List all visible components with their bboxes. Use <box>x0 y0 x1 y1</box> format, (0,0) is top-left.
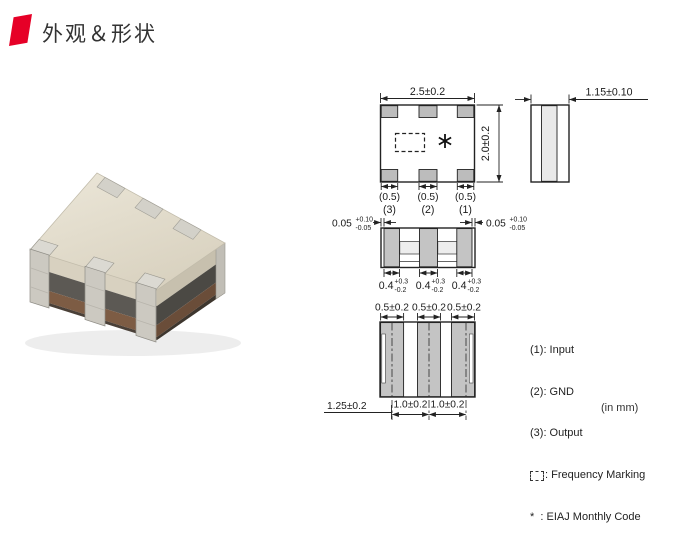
terminal-width-labels: 0.4 +0.3 -0.2 0.4 +0.3 -0.2 0.4 +0.3 -0.… <box>379 279 482 295</box>
edge-gap-dim-right <box>460 218 483 227</box>
svg-text:0.4: 0.4 <box>379 280 394 292</box>
svg-text:0.4: 0.4 <box>416 280 431 292</box>
front-view-terminals <box>384 229 472 267</box>
edge-gap-plus-left: +0.10 <box>356 217 374 224</box>
pin-number-2: (2) <box>422 204 435 216</box>
component-photo <box>15 140 255 370</box>
pad-width-label-1: (0.5) <box>455 192 476 203</box>
bottom-view-lands <box>381 323 475 397</box>
svg-text:+0.3: +0.3 <box>468 279 482 286</box>
edge-gap-dim-left <box>373 218 396 227</box>
bottom-view-drawing: 0.5±0.2 0.5±0.2 0.5±0.2 1.0±0.2 1.0±0.2 … <box>324 303 481 421</box>
side-notch-right <box>469 334 473 383</box>
edge-gap-value-right: 0.05 <box>486 219 506 230</box>
terminal-right-corner <box>216 243 225 299</box>
front-view-drawing: 0.05 +0.10 -0.05 0.05 +0.10 -0.05 0.4 +0… <box>332 217 527 295</box>
pad-width-dims <box>381 183 474 190</box>
side-view-drawing: 1.15±0.10 <box>515 87 648 183</box>
pad-width-label-2: (0.5) <box>418 192 439 203</box>
pitch-label-1: 1.0±0.2 <box>394 400 428 411</box>
pad-width-label-3: (0.5) <box>379 192 400 203</box>
pitch-label-2: 1.0±0.2 <box>431 400 465 411</box>
page-title: 外观＆形状 <box>42 18 157 48</box>
dim-1-15: 1.15±0.10 <box>585 87 632 99</box>
land-width-dims <box>381 313 475 321</box>
pin-number-1: (1) <box>459 204 472 216</box>
legend: (1): Input (2): GND (3): Output : Freque… <box>530 316 645 539</box>
offset-label: 1.25±0.2 <box>327 401 367 412</box>
land-width-label-3: 0.5±0.2 <box>447 303 481 314</box>
svg-text:-0.2: -0.2 <box>395 287 407 294</box>
land-width-label-2: 0.5±0.2 <box>412 303 446 314</box>
svg-text:0.4: 0.4 <box>452 280 467 292</box>
legend-item-input: (1): Input <box>530 344 645 358</box>
svg-text:-0.2: -0.2 <box>432 287 444 294</box>
land-width-label-1: 0.5±0.2 <box>375 303 409 314</box>
pin-number-3: (3) <box>383 204 396 216</box>
legend-item-eiaj-code: * : EIAJ Monthly Code <box>530 511 645 525</box>
svg-text:+0.3: +0.3 <box>395 279 409 286</box>
svg-text:-0.2: -0.2 <box>468 287 480 294</box>
dim-2-0: 2.0±0.2 <box>480 126 492 161</box>
photo-shadow <box>25 330 241 356</box>
side-notch-left <box>382 334 386 383</box>
legend-item-output: (3): Output <box>530 427 645 441</box>
edge-gap-value-left: 0.05 <box>332 219 352 230</box>
frequency-marking-icon <box>530 471 544 481</box>
legend-item-frequency-marking: : Frequency Marking <box>530 469 645 483</box>
edge-gap-plus-right: +0.10 <box>510 217 528 224</box>
legend-item-gnd: (2): GND <box>530 386 645 400</box>
svg-text:+0.3: +0.3 <box>432 279 446 286</box>
terminal-width-dims <box>384 269 472 277</box>
units-note: (in mm) <box>601 402 638 414</box>
dim-2-5: 2.5±0.2 <box>410 86 445 98</box>
top-view-drawing: 2.5±0.2 2.0±0.2 (0.5) (0.5) (0.5) (3) (2… <box>379 86 503 216</box>
edge-gap-minus-right: -0.05 <box>510 225 526 232</box>
edge-gap-minus-left: -0.05 <box>356 225 372 232</box>
accent-mark-icon <box>9 14 32 46</box>
